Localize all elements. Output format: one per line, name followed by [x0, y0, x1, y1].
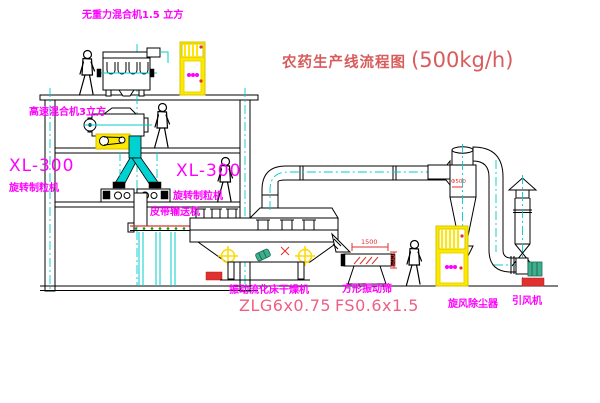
granulator-left: [101, 182, 134, 202]
label-high-speed-mixer: 高速混合机3立方: [29, 108, 106, 118]
fan-motor: [528, 262, 542, 276]
diagram-title: 农药生产线流程图 (500kg/h): [282, 48, 513, 72]
label-granulator-right-model: XL-300: [176, 163, 241, 180]
cyclone-inlet: [428, 165, 452, 179]
sieve-base: [348, 266, 386, 284]
control-cabinet-right: [436, 226, 468, 286]
worker-figure-floor2: [155, 104, 170, 149]
roof-slab: [40, 95, 258, 100]
gravity-free-mixer: [97, 48, 168, 96]
worker-figure-roof: [80, 51, 95, 96]
label-fan-name: 引风机: [512, 297, 542, 307]
induced-draft-fan: [516, 258, 544, 286]
label-sieve-name: 方形振动筛: [342, 285, 392, 295]
indicator-light: [199, 45, 202, 48]
discharge-duct: [134, 193, 147, 226]
label-gravity-mixer: 无重力混合机1.5 立方: [82, 11, 183, 21]
dryer-hood: [250, 208, 338, 218]
dim-sieve-height: 600: [390, 255, 397, 267]
fluid-bed-dryer: [190, 208, 350, 280]
label-dryer-name: 振动流化床干燥机: [229, 286, 309, 296]
dryer-top-ports: [194, 209, 238, 218]
label-belt-conveyor: 皮带输送机: [150, 208, 200, 218]
label-granulator-left-name: 旋转制粒机: [9, 184, 59, 194]
dryer-discharge-chute: [332, 234, 350, 252]
inlet-pipe: [160, 52, 168, 63]
conveyor-legs: [139, 232, 175, 286]
label-granulator-right-name: 旋转制粒机: [173, 192, 223, 202]
indicator-light: [199, 79, 202, 82]
label-cyclone-name: 旋风除尘器: [448, 300, 498, 310]
process-flow-diagram: 农药生产线流程图 (500kg/h) 无重力混合机1.5 立方 高速混合机3立方…: [0, 0, 600, 403]
label-granulator-left-model: XL-300: [9, 158, 74, 175]
dryer-support-red: [206, 272, 222, 280]
label-sieve-model: FS0.6x1.5: [335, 298, 419, 314]
hood-ports: [256, 220, 316, 230]
floor2-slab: [55, 148, 240, 153]
dim-cyclone: Φ500: [451, 180, 466, 186]
belt-rollers: [135, 227, 194, 230]
exhaust-duct: [262, 161, 450, 210]
dim-sieve-length: 1500: [361, 239, 378, 246]
label-dryer-model: ZLG6x0.75: [239, 298, 331, 314]
indicator-light: [460, 234, 463, 237]
indicator-light: [459, 266, 462, 269]
control-cabinet-top: [180, 42, 205, 95]
worker-figure-ground: [407, 241, 422, 286]
fan-base: [522, 278, 544, 286]
title-capacity: (500kg/h): [411, 48, 513, 72]
cyclone-outlet-pipe: [473, 147, 520, 274]
title-text: 农药生产线流程图: [282, 55, 406, 71]
mixer-inlet-spout: [147, 48, 160, 57]
